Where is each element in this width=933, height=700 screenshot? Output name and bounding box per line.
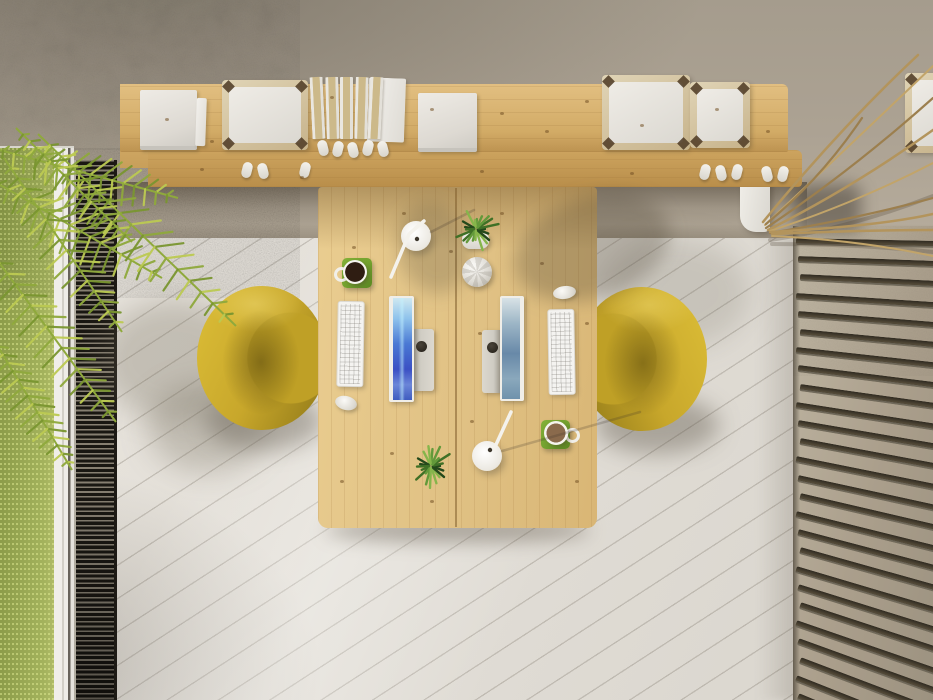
wood-knot xyxy=(390,452,394,455)
top-desk-lamp-base xyxy=(401,221,431,251)
wood-knot xyxy=(200,168,204,171)
cable-hole xyxy=(487,342,498,353)
wood-knot xyxy=(430,108,434,111)
wood-knot xyxy=(500,112,504,115)
wood-knot xyxy=(165,118,169,121)
wood-knot xyxy=(766,130,770,133)
wood-knot xyxy=(330,96,334,99)
plant-pot xyxy=(462,233,489,249)
wood-knot xyxy=(630,172,634,175)
wood-knot xyxy=(480,170,484,173)
paper-decor-ball xyxy=(462,257,492,287)
coffee-cup-bottom xyxy=(544,421,568,445)
left-keyboard xyxy=(336,301,364,387)
left-monitor-screen xyxy=(389,296,414,402)
wood-knot xyxy=(500,212,504,215)
right-keyboard xyxy=(547,309,575,395)
coffee-cup-top xyxy=(343,260,367,284)
wood-knot xyxy=(470,420,474,423)
wood-knot xyxy=(585,322,589,325)
wood-knots-layer xyxy=(0,0,933,700)
wood-knot xyxy=(340,480,344,483)
wood-knot xyxy=(210,140,214,143)
office-top-view-photo xyxy=(0,0,933,700)
wood-knot xyxy=(352,246,356,249)
wood-knot xyxy=(575,480,579,483)
wood-knot xyxy=(300,176,304,179)
wood-knot xyxy=(715,108,719,111)
wood-knot xyxy=(640,124,644,127)
wood-knot xyxy=(545,130,549,133)
bottom-desk-lamp-base xyxy=(472,441,502,471)
cable-hole xyxy=(416,341,427,352)
wood-knot xyxy=(585,100,589,103)
right-monitor-screen xyxy=(500,296,524,401)
wood-knot xyxy=(430,500,434,503)
